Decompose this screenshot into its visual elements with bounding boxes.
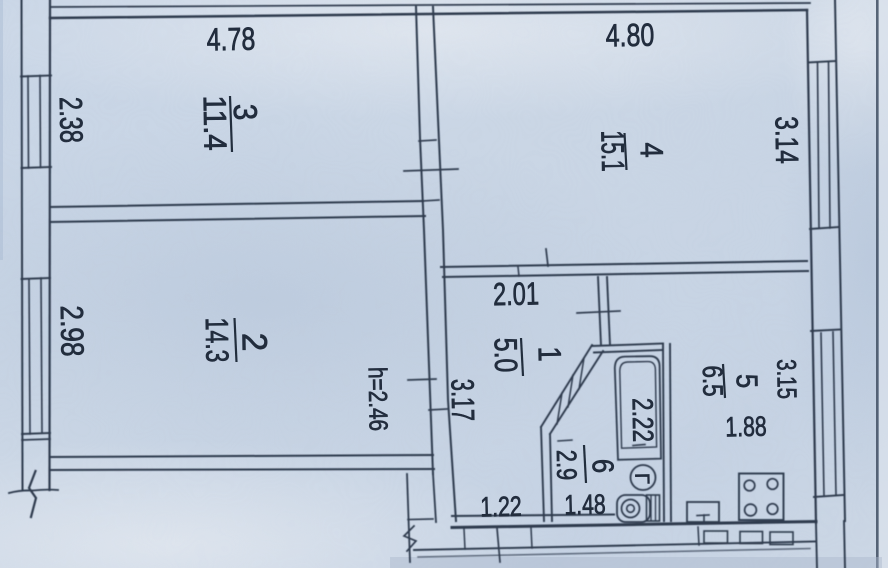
svg-text:6.5: 6.5 (696, 365, 727, 397)
svg-text:4: 4 (633, 142, 669, 158)
svg-text:11.4: 11.4 (196, 95, 233, 151)
svg-text:5: 5 (730, 374, 764, 389)
svg-text:2.98: 2.98 (53, 305, 89, 357)
svg-text:3.15: 3.15 (770, 359, 801, 399)
svg-text:1.22: 1.22 (480, 491, 522, 523)
svg-text:2.38: 2.38 (53, 97, 89, 144)
svg-text:2.22: 2.22 (626, 398, 660, 443)
svg-text:6: 6 (586, 459, 620, 474)
svg-text:2: 2 (234, 332, 273, 351)
svg-text:4.80: 4.80 (605, 18, 654, 55)
svg-text:5.0: 5.0 (487, 337, 523, 372)
svg-text:Г: Г (630, 473, 652, 484)
svg-text:15.1: 15.1 (594, 130, 631, 172)
svg-text:2.9: 2.9 (550, 450, 582, 481)
svg-text:1.48: 1.48 (564, 489, 606, 521)
svg-text:3.17: 3.17 (445, 379, 482, 422)
svg-text:1.88: 1.88 (725, 411, 767, 443)
svg-text:1: 1 (531, 346, 567, 362)
svg-text:h=2.46: h=2.46 (363, 367, 393, 432)
svg-text:2.01: 2.01 (493, 276, 540, 312)
svg-text:4.78: 4.78 (206, 22, 255, 59)
svg-text:14.3: 14.3 (199, 317, 235, 362)
svg-text:3.14: 3.14 (768, 116, 805, 164)
